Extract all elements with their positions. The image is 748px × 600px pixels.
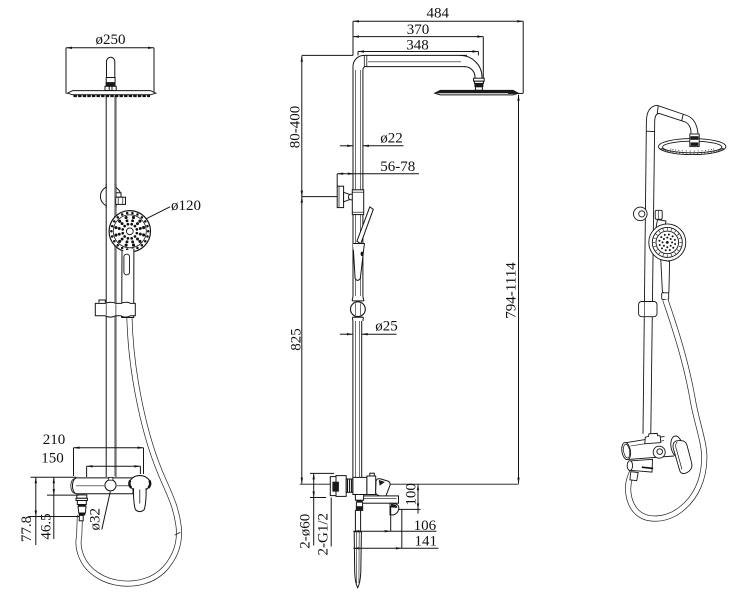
svg-text:106: 106 <box>414 518 437 534</box>
svg-text:150: 150 <box>41 451 64 467</box>
svg-text:484: 484 <box>427 6 450 22</box>
svg-text:141: 141 <box>415 534 438 550</box>
svg-text:370: 370 <box>407 22 430 38</box>
svg-text:ø22: ø22 <box>380 131 403 147</box>
svg-text:210: 210 <box>43 432 66 448</box>
svg-text:56-78: 56-78 <box>380 159 415 175</box>
svg-text:ø25: ø25 <box>375 319 398 335</box>
svg-text:2-ø60: 2-ø60 <box>297 514 313 549</box>
svg-text:77.8: 77.8 <box>19 516 35 542</box>
svg-text:348: 348 <box>406 37 429 53</box>
svg-text:80-400: 80-400 <box>288 106 304 149</box>
svg-text:794-1114: 794-1114 <box>503 262 519 319</box>
svg-text:46.5: 46.5 <box>38 513 54 539</box>
svg-text:100: 100 <box>404 483 420 506</box>
svg-text:825: 825 <box>289 328 305 351</box>
svg-text:ø32: ø32 <box>88 508 104 531</box>
svg-text:ø120: ø120 <box>171 198 201 214</box>
svg-text:ø250: ø250 <box>96 32 126 48</box>
svg-text:2-G1/2: 2-G1/2 <box>316 513 332 556</box>
